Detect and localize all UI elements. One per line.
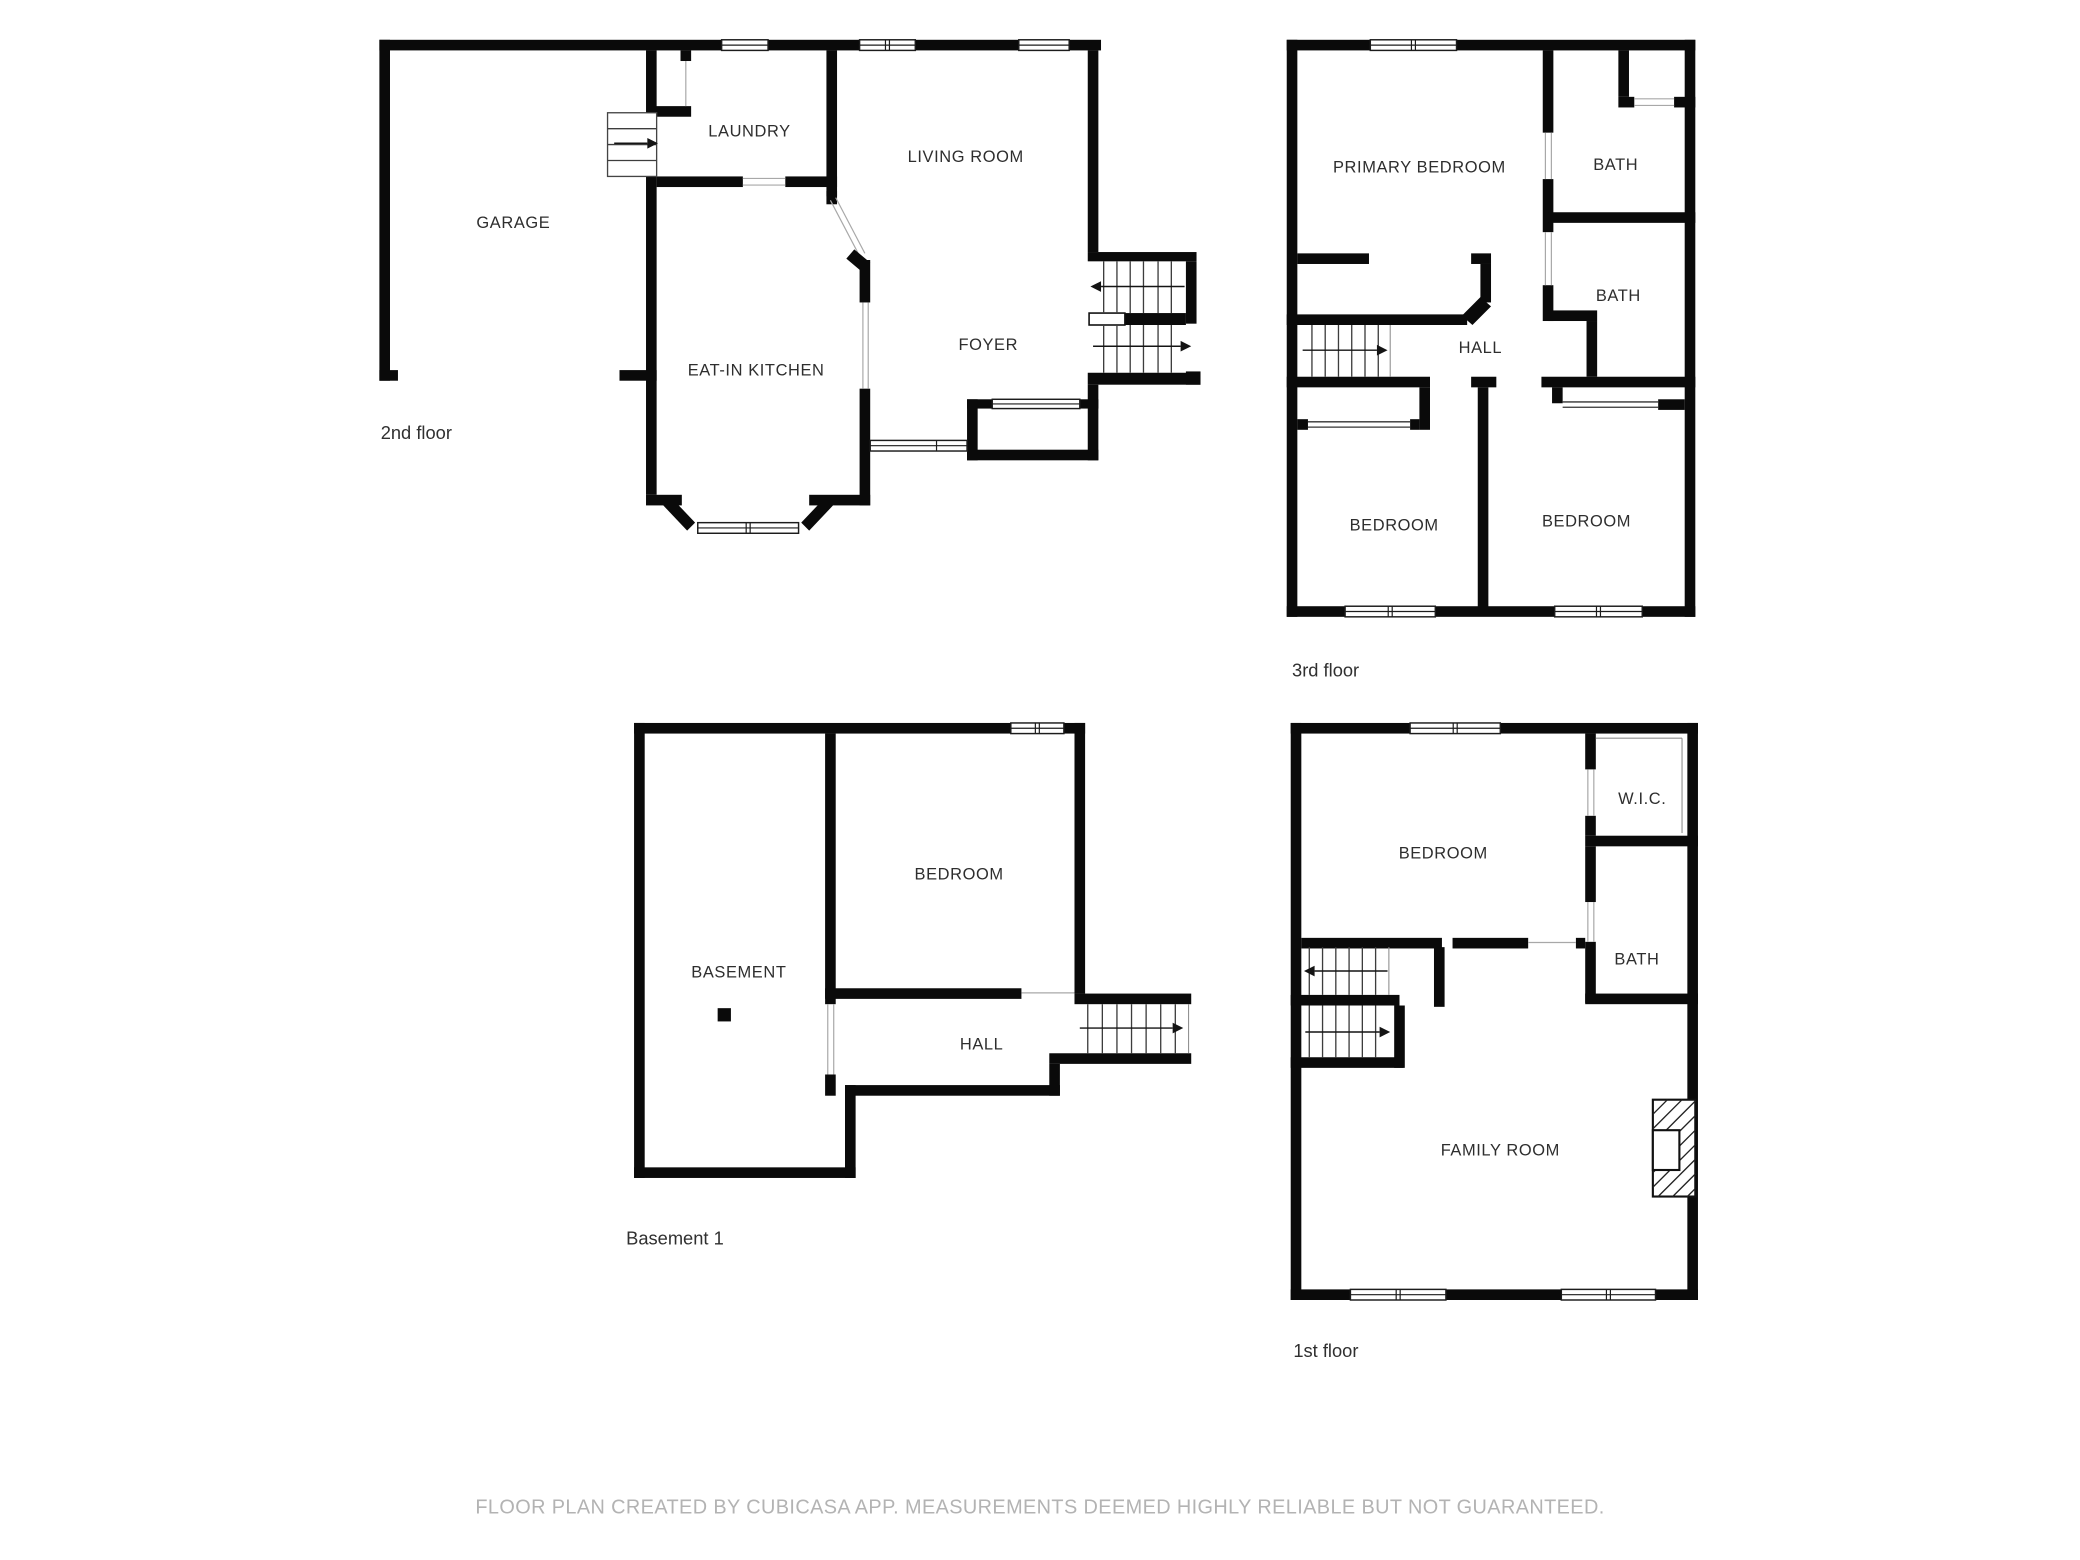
stairs-lower-flight — [1093, 325, 1191, 373]
room-label-living-room: LIVING ROOM — [908, 148, 1024, 166]
room-label-bedroom-right: BEDROOM — [1542, 513, 1631, 531]
room-label-1st-bath: BATH — [1614, 950, 1659, 968]
door-top-closet — [1634, 99, 1674, 106]
window-top-living-left — [860, 40, 916, 51]
floor-plan-canvas: GARAGE LAUNDRY LIVING ROOM EAT-IN KITCHE… — [0, 0, 2080, 1560]
door-diagonal-living-kitchen — [826, 191, 870, 272]
room-label-bedroom-left: BEDROOM — [1350, 517, 1439, 535]
wic-outline — [1596, 738, 1682, 833]
door-bath — [1588, 902, 1594, 942]
plan-2nd-floor-labels: GARAGE LAUNDRY LIVING ROOM EAT-IN KITCHE… — [381, 123, 1024, 443]
window-1st-bottom-left — [1350, 1289, 1446, 1300]
plan-basement: BASEMENT BEDROOM HALL Basement 1 — [626, 723, 1191, 1248]
plan-2nd-floor-walls — [379, 40, 1200, 531]
plan-3rd-floor: PRIMARY BEDROOM BATH BATH HALL BEDROOM B… — [1287, 40, 1696, 681]
stairs-direction-arrow-icon — [1303, 345, 1388, 356]
window-foyer-closet — [992, 399, 1080, 408]
floor-label-3rd-floor: 3rd floor — [1292, 660, 1359, 681]
floor-label-basement: Basement 1 — [626, 1227, 724, 1248]
fireplace-icon — [1653, 1100, 1695, 1197]
window-top-living-right — [1019, 40, 1069, 51]
door-primary-bedroom — [1545, 133, 1551, 179]
plan-basement-walls — [634, 723, 1191, 1178]
floor-label-2nd-floor: 2nd floor — [381, 422, 452, 443]
window-1st-top — [1410, 723, 1500, 734]
room-label-eat-in-kitchen: EAT-IN KITCHEN — [688, 361, 825, 379]
plan-1st-floor-labels: BEDROOM W.I.C. BATH FAMILY ROOM 1st floo… — [1293, 790, 1666, 1361]
room-label-primary-bedroom: PRIMARY BEDROOM — [1333, 158, 1506, 176]
closet-slider-bedroom-left — [1308, 422, 1410, 427]
door-laundry-kitchen — [743, 178, 785, 185]
window-3rd-bottom-left — [1345, 606, 1435, 617]
support-column — [718, 1008, 731, 1021]
closet-slider-bedroom-right — [1563, 402, 1659, 407]
plan-1st-floor-walls — [1291, 723, 1698, 1300]
window-foyer-band — [870, 440, 967, 451]
room-label-laundry: LAUNDRY — [708, 123, 790, 141]
hall-stairs — [1303, 325, 1391, 377]
room-label-bath-mid: BATH — [1596, 287, 1641, 305]
footer-disclaimer: FLOOR PLAN CREATED BY CUBICASA APP. MEAS… — [475, 1497, 1604, 1519]
room-label-hall: HALL — [1459, 339, 1503, 357]
room-label-family-room: FAMILY ROOM — [1441, 1141, 1560, 1159]
door-bath2 — [1545, 232, 1551, 285]
plan-3rd-floor-labels: PRIMARY BEDROOM BATH BATH HALL BEDROOM B… — [1292, 156, 1641, 681]
room-label-foyer: FOYER — [958, 336, 1018, 354]
garage-stairs — [608, 113, 658, 177]
plan-1st-floor: BEDROOM W.I.C. BATH FAMILY ROOM 1st floo… — [1291, 723, 1698, 1361]
door-basement-hall — [828, 1004, 834, 1074]
room-label-wic: W.I.C. — [1618, 790, 1666, 808]
room-label-basement-hall: HALL — [960, 1035, 1004, 1053]
stairs-upper-flight — [1304, 947, 1389, 995]
floor-label-1st-floor: 1st floor — [1293, 1340, 1358, 1361]
window-1st-bottom-right — [1561, 1289, 1655, 1300]
basement-stairs — [1080, 1004, 1189, 1053]
window-3rd-top — [1370, 40, 1456, 51]
room-label-bath-top: BATH — [1593, 156, 1638, 174]
plan-3rd-floor-walls — [1287, 40, 1696, 617]
window-kitchen-bay — [698, 523, 799, 534]
stairs-lower-flight — [1305, 1006, 1390, 1058]
room-label-basement-bedroom: BEDROOM — [915, 865, 1004, 883]
window-3rd-bottom-right — [1555, 606, 1643, 617]
window-basement-top — [1011, 723, 1064, 734]
room-label-basement: BASEMENT — [691, 964, 786, 982]
door-kitchen-foyer — [863, 302, 868, 388]
plan-basement-labels: BASEMENT BEDROOM HALL Basement 1 — [626, 865, 1004, 1248]
stairs-upper-flight — [1090, 261, 1184, 313]
door-bedroom-wic — [1588, 769, 1594, 815]
plan-2nd-floor: GARAGE LAUNDRY LIVING ROOM EAT-IN KITCHE… — [379, 40, 1200, 533]
room-label-garage: GARAGE — [476, 214, 550, 232]
window-top-laundry — [722, 40, 768, 51]
room-label-1st-bedroom: BEDROOM — [1399, 844, 1488, 862]
